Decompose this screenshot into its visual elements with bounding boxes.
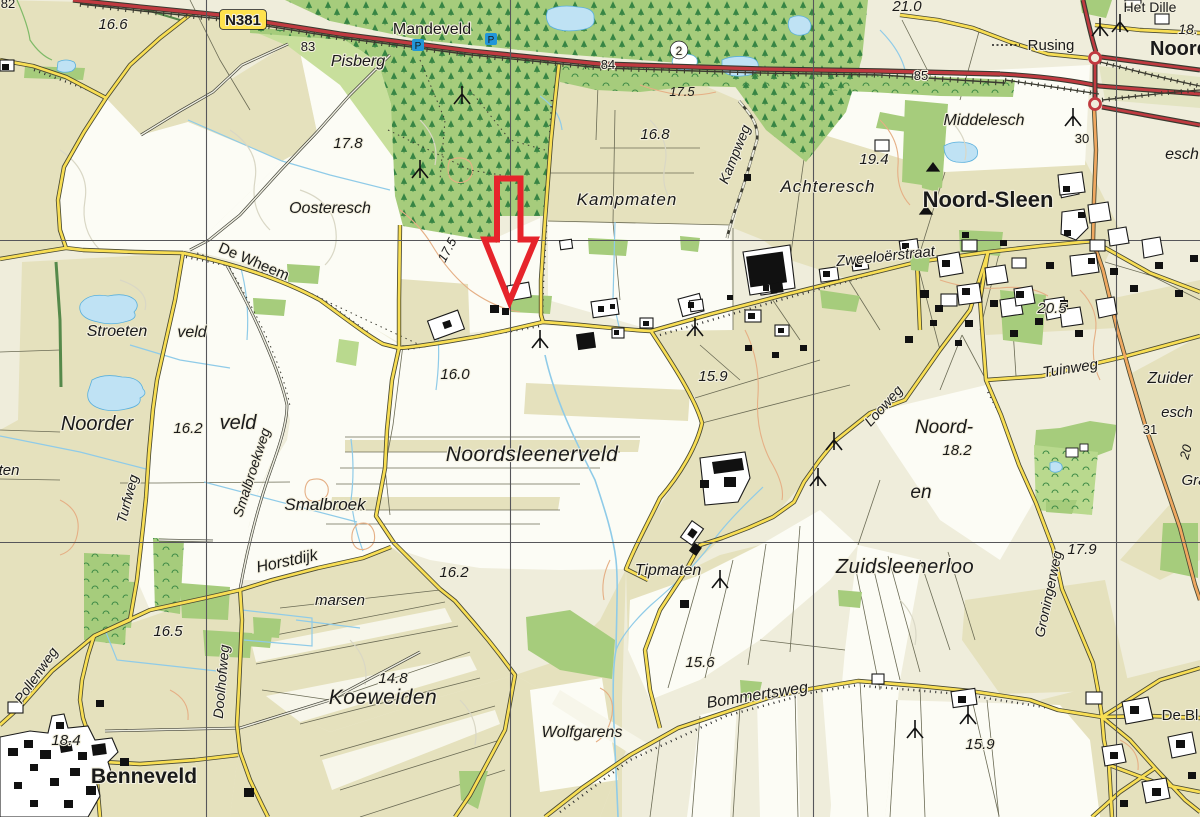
svg-text:17.5: 17.5 [669, 84, 695, 99]
svg-text:Smalbroek: Smalbroek [284, 495, 367, 514]
svg-text:Grä: Grä [1181, 472, 1200, 489]
svg-text:19.4: 19.4 [859, 151, 888, 168]
svg-text:20.5: 20.5 [1036, 300, 1067, 317]
svg-text:Noord: Noord [1150, 38, 1200, 60]
svg-text:Rusing: Rusing [1028, 37, 1075, 54]
svg-text:esch: esch [1165, 146, 1199, 163]
svg-text:18.2: 18.2 [942, 442, 972, 459]
svg-text:15.6: 15.6 [685, 654, 715, 671]
svg-text:Stroeten: Stroeten [87, 323, 148, 340]
svg-text:Middelesch: Middelesch [944, 112, 1025, 129]
svg-text:N381: N381 [225, 12, 261, 29]
svg-text:18.: 18. [1178, 21, 1197, 37]
svg-text:Koeweiden: Koeweiden [329, 686, 437, 709]
svg-text:P: P [415, 41, 422, 52]
svg-text:P: P [488, 35, 495, 46]
svg-text:16.2: 16.2 [173, 420, 203, 437]
svg-text:Oosteresch: Oosteresch [289, 200, 371, 217]
svg-text:84: 84 [601, 57, 615, 72]
svg-text:21.0: 21.0 [891, 0, 922, 15]
svg-text:16.0: 16.0 [440, 366, 470, 383]
svg-text:2: 2 [676, 44, 683, 58]
svg-text:Noordsleenerveld: Noordsleenerveld [446, 443, 619, 466]
svg-text:17.8: 17.8 [333, 135, 363, 152]
svg-text:16.8: 16.8 [640, 126, 670, 143]
svg-text:Zuider: Zuider [1146, 370, 1193, 387]
svg-text:Zuidsleenerloo: Zuidsleenerloo [835, 556, 974, 578]
svg-text:Noord-Sleen: Noord-Sleen [923, 187, 1054, 212]
svg-text:18.4: 18.4 [51, 732, 80, 749]
svg-text:16.6: 16.6 [98, 16, 128, 33]
svg-text:Tipmaten: Tipmaten [635, 562, 702, 579]
svg-text:14.8: 14.8 [378, 670, 408, 687]
svg-text:30: 30 [1075, 131, 1089, 146]
svg-text:Het Dille: Het Dille [1124, 0, 1177, 15]
svg-text:Achteresch: Achteresch [779, 177, 875, 196]
svg-text:16.5: 16.5 [153, 623, 183, 640]
svg-text:Mandeveld: Mandeveld [393, 21, 471, 38]
svg-text:31: 31 [1143, 422, 1157, 437]
svg-text:82: 82 [1, 0, 15, 11]
svg-text:De Bl: De Bl [1162, 707, 1199, 724]
svg-text:veld: veld [177, 324, 207, 341]
svg-text:16.2: 16.2 [439, 564, 469, 581]
svg-text:17.9: 17.9 [1067, 541, 1097, 558]
svg-text:Pisberg: Pisberg [331, 53, 385, 70]
svg-text:ten: ten [0, 462, 19, 479]
svg-text:Noorder: Noorder [61, 413, 135, 435]
svg-text:83: 83 [301, 39, 315, 54]
svg-text:15.9: 15.9 [965, 736, 995, 753]
svg-text:esch: esch [1161, 404, 1193, 421]
svg-text:en: en [910, 482, 931, 503]
svg-text:Noord-: Noord- [915, 417, 973, 438]
svg-text:Kampmaten: Kampmaten [577, 190, 678, 209]
svg-text:veld: veld [220, 412, 258, 434]
svg-text:85: 85 [914, 68, 928, 83]
svg-text:Wolfgarens: Wolfgarens [542, 724, 623, 741]
svg-text:marsen: marsen [315, 592, 365, 609]
svg-text:Benneveld: Benneveld [91, 765, 197, 788]
svg-text:15.9: 15.9 [698, 368, 728, 385]
